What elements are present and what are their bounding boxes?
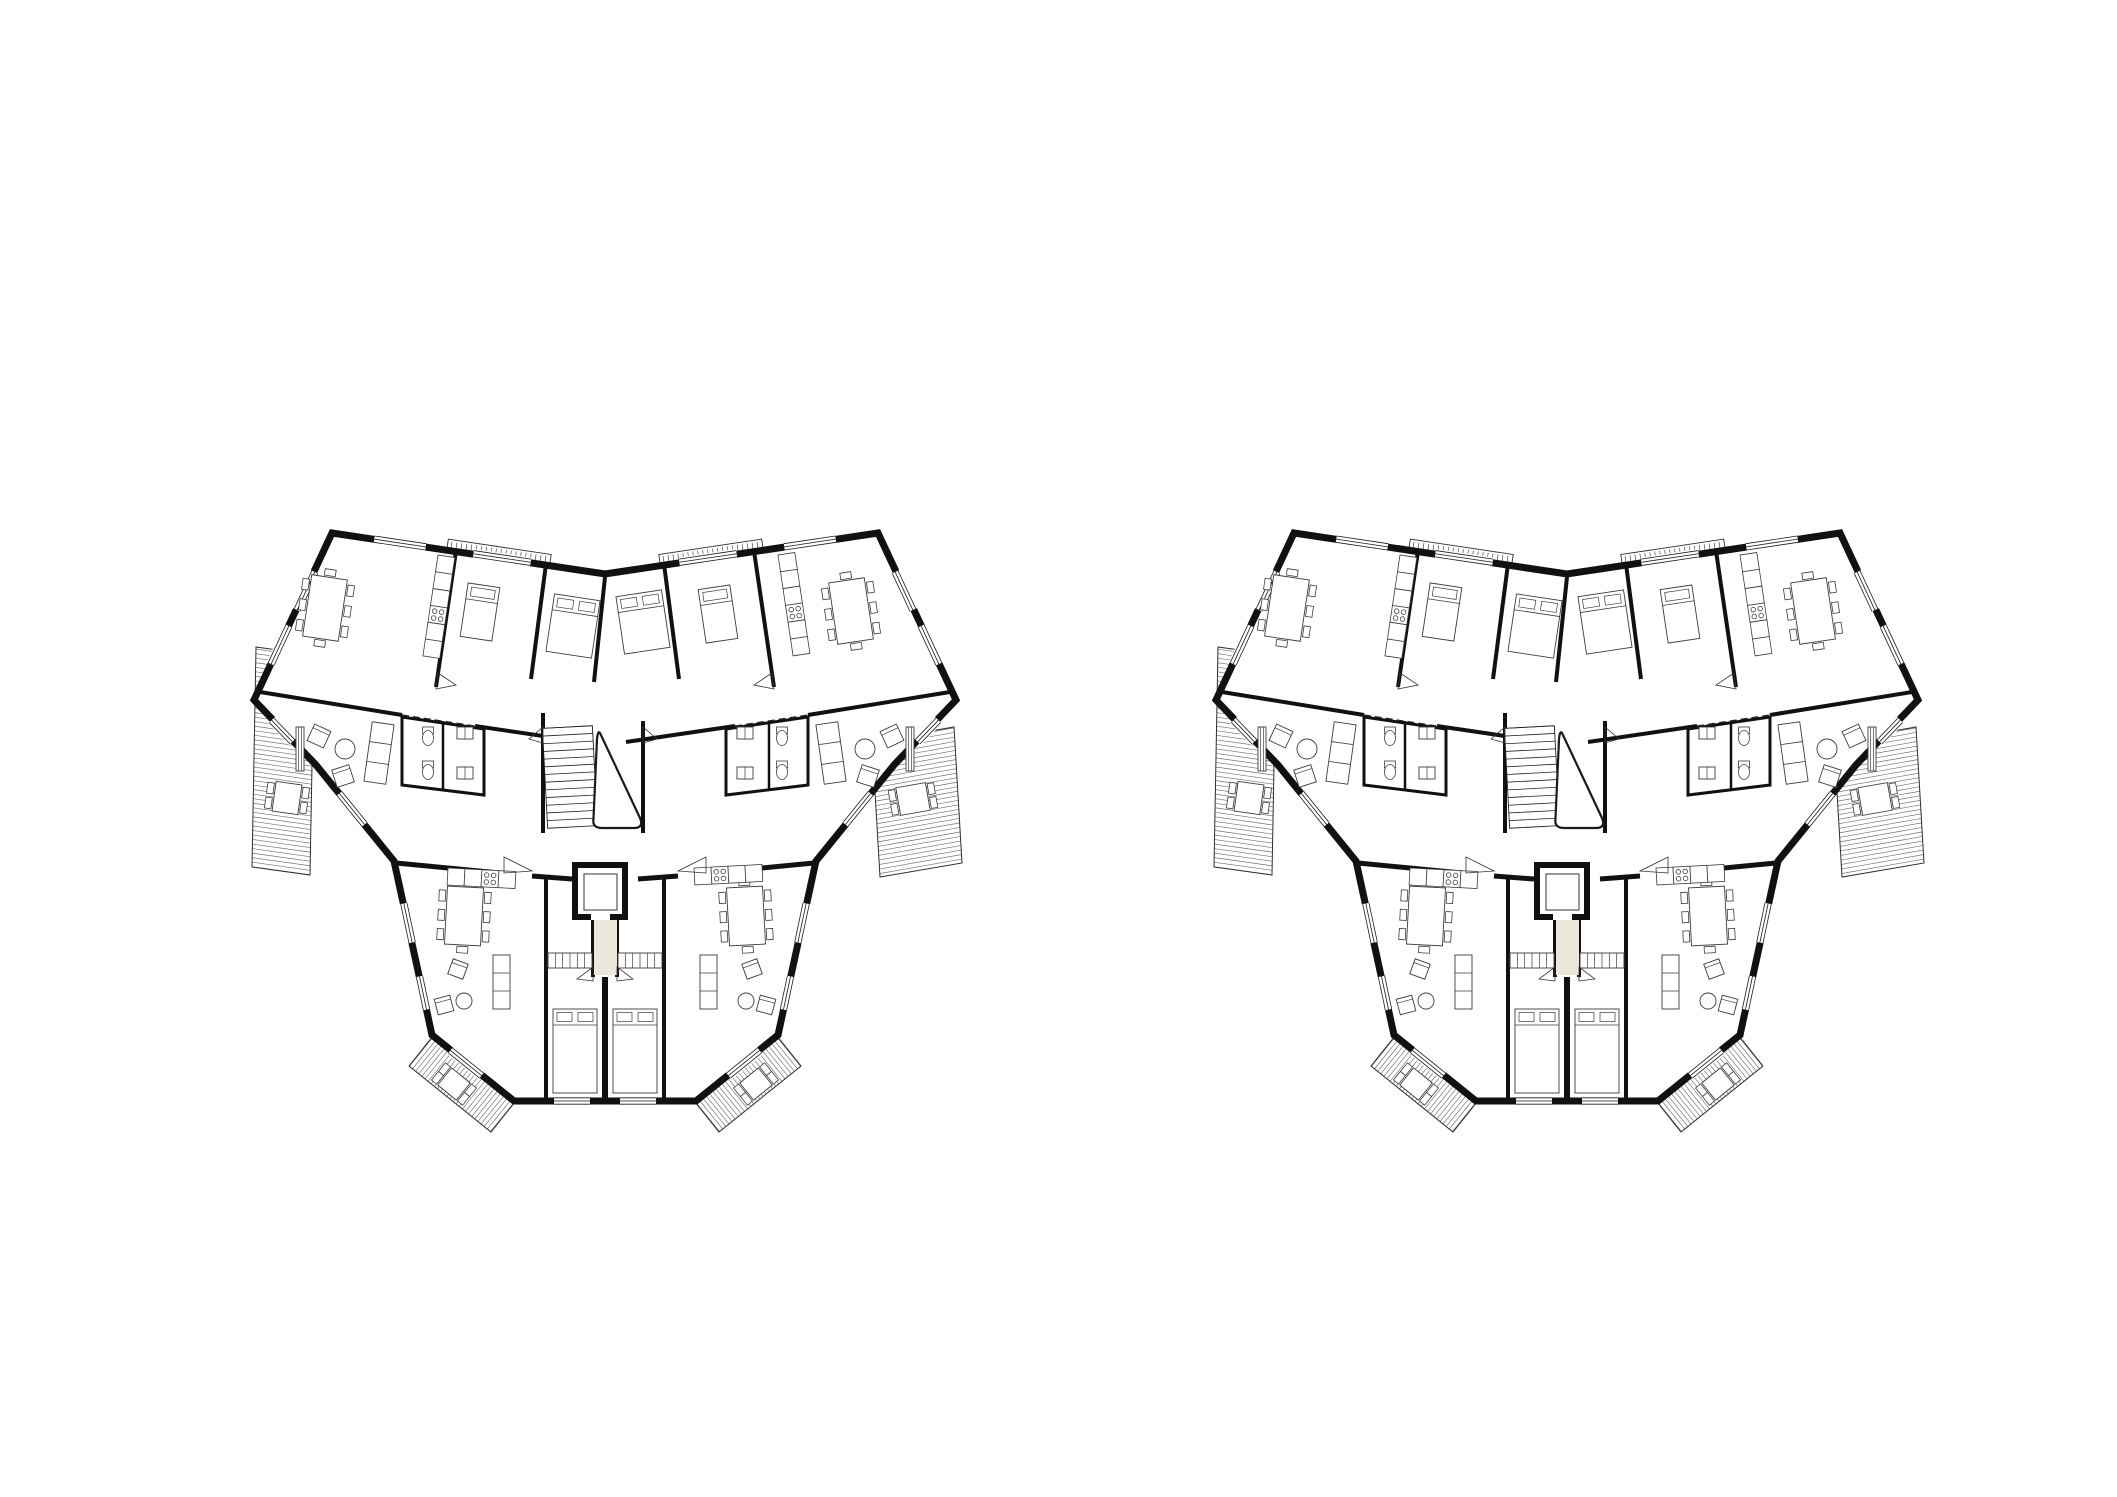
- chair: [300, 802, 308, 814]
- kitchen-cell: [788, 620, 807, 639]
- chair: [888, 790, 896, 802]
- pillow: [1579, 1013, 1594, 1022]
- pillow: [638, 1013, 653, 1022]
- pillow: [578, 1013, 593, 1022]
- kitchen-cell: [1426, 869, 1444, 887]
- chair: [869, 602, 877, 614]
- wardrobe: [296, 727, 304, 771]
- toilet-bowl: [777, 765, 788, 780]
- chair: [484, 892, 491, 903]
- bed: [616, 590, 670, 654]
- deck-board-line: [1344, 1046, 1671, 1450]
- chair: [1262, 802, 1270, 814]
- chair: [828, 629, 836, 641]
- toilet: [1385, 727, 1396, 746]
- chair: [266, 782, 274, 794]
- table-top: [896, 783, 930, 816]
- pillow: [557, 598, 574, 609]
- chair: [1309, 585, 1317, 597]
- kitchen-cell: [447, 868, 465, 886]
- pillow: [578, 601, 595, 612]
- bed: [1515, 1009, 1559, 1093]
- chair: [264, 797, 272, 809]
- chair: [1727, 909, 1734, 920]
- corridor-floor: [1556, 920, 1579, 975]
- interior-wall: [1494, 876, 1534, 879]
- chair: [765, 909, 772, 920]
- kitchen-cell: [1397, 555, 1416, 574]
- chair: [1853, 803, 1861, 815]
- floor-plans-svg: [0, 0, 2117, 1497]
- toilet-bowl: [423, 731, 434, 746]
- table-top: [1689, 886, 1728, 946]
- floor-plan-right: [952, 467, 2117, 1449]
- wardrobe-body: [906, 727, 914, 771]
- pillow: [557, 1013, 572, 1022]
- wardrobe: [1419, 727, 1435, 739]
- wardrobe: [1868, 727, 1876, 771]
- chair: [866, 581, 874, 593]
- chair: [850, 642, 862, 650]
- chair: [721, 931, 728, 942]
- chair: [1802, 572, 1814, 580]
- armchair-seat: [434, 995, 454, 1015]
- chair: [891, 803, 899, 815]
- wardrobe: [1699, 767, 1715, 779]
- chair: [840, 572, 852, 580]
- wardrobe: [1419, 767, 1435, 779]
- chair: [1446, 892, 1453, 903]
- chair: [927, 783, 935, 795]
- chair: [1401, 890, 1408, 901]
- toilet: [1385, 761, 1396, 780]
- chair: [1892, 796, 1900, 808]
- chair: [1683, 931, 1690, 942]
- coffee-table: [335, 739, 355, 759]
- chair: [764, 890, 771, 901]
- kitchen-cell: [423, 639, 442, 658]
- stair-flight: [542, 726, 597, 828]
- kitchen-cell: [498, 871, 516, 889]
- table-top: [1858, 783, 1892, 816]
- pillow: [1519, 1013, 1534, 1022]
- window-band: [1582, 1096, 1618, 1106]
- toilet-bowl: [1385, 731, 1396, 746]
- elevator-door: [591, 913, 610, 920]
- wardrobe: [457, 727, 473, 739]
- kitchen-cell: [1387, 622, 1406, 641]
- chair: [1704, 946, 1715, 953]
- wardrobe-body: [1258, 727, 1266, 771]
- sofa: [1662, 955, 1679, 1009]
- kitchen-counter: [1656, 864, 1725, 885]
- terrace-table: [888, 781, 938, 817]
- chair: [347, 585, 355, 597]
- coffee-table: [738, 993, 754, 1009]
- sofa-body: [1455, 955, 1472, 1009]
- chair: [1445, 912, 1452, 923]
- coffee-table: [855, 739, 875, 759]
- chair: [720, 912, 727, 923]
- toilet: [777, 727, 788, 746]
- kitchen-cell: [1753, 637, 1772, 656]
- pillow: [1540, 601, 1557, 612]
- page-background: [0, 0, 2117, 1497]
- chair: [439, 890, 446, 901]
- chair: [1305, 605, 1313, 617]
- wardrobe: [548, 953, 592, 968]
- chair: [1257, 619, 1265, 631]
- kitchen-cell: [728, 865, 746, 883]
- kitchen-cell: [430, 589, 449, 608]
- deck-board-line: [1462, 1046, 1789, 1450]
- deck-board-line: [60, 476, 575, 548]
- chair: [1264, 787, 1272, 799]
- bed: [1575, 1009, 1619, 1093]
- pillow: [1540, 1013, 1555, 1022]
- sofa: [700, 955, 717, 1009]
- chair: [302, 787, 310, 799]
- sofa-body: [493, 955, 510, 1009]
- window-band: [1516, 1096, 1552, 1106]
- kitchen-cell: [435, 555, 454, 574]
- wardrobe: [1510, 953, 1554, 968]
- wardrobe: [1258, 727, 1266, 771]
- kitchen-cell: [783, 586, 802, 605]
- pillow: [1604, 594, 1621, 605]
- deck-board-line: [500, 1046, 827, 1450]
- kitchen-cell: [745, 864, 763, 882]
- chair: [873, 622, 881, 634]
- coffee-table: [1817, 739, 1837, 759]
- table-top: [445, 886, 484, 946]
- kitchen-cell: [778, 552, 797, 571]
- chair: [1276, 639, 1288, 647]
- chair: [719, 892, 726, 903]
- chair: [1264, 578, 1272, 590]
- chair: [340, 626, 348, 638]
- kitchen-cell: [791, 637, 810, 656]
- wardrobe: [1580, 953, 1624, 968]
- toilet-bowl: [777, 731, 788, 746]
- bed: [613, 1009, 657, 1093]
- toilet: [777, 761, 788, 780]
- toilet: [423, 727, 434, 746]
- chair: [1400, 909, 1407, 920]
- chair: [483, 912, 490, 923]
- chair: [1835, 622, 1843, 634]
- chair: [314, 639, 326, 647]
- toilet: [423, 761, 434, 780]
- kitchen-cell: [1740, 552, 1759, 571]
- toilet: [1739, 761, 1750, 780]
- wardrobe: [1699, 727, 1715, 739]
- chair: [298, 599, 306, 611]
- wardrobe: [618, 953, 662, 968]
- chair: [343, 605, 351, 617]
- chair: [766, 928, 773, 939]
- wardrobe: [737, 767, 753, 779]
- chair: [824, 608, 832, 620]
- chair: [1681, 892, 1688, 903]
- kitchen-cell: [1395, 572, 1414, 591]
- chair: [1228, 782, 1236, 794]
- chair: [482, 931, 489, 942]
- bed: [1578, 590, 1632, 654]
- wardrobe-body: [1868, 727, 1876, 771]
- pillow: [617, 1013, 632, 1022]
- pillow: [1519, 598, 1536, 609]
- kitchen-cell: [1745, 586, 1764, 605]
- window-band: [554, 1096, 590, 1106]
- kitchen-cell: [786, 603, 805, 622]
- bed: [553, 1009, 597, 1093]
- interior-wall: [1600, 876, 1640, 879]
- wardrobe: [737, 727, 753, 739]
- kitchen-cell: [1390, 605, 1409, 624]
- kitchen-cell: [781, 569, 800, 588]
- kitchen-cell: [425, 622, 444, 641]
- kitchen-cell: [464, 869, 482, 887]
- kitchen-cell: [428, 605, 447, 624]
- chair: [1682, 912, 1689, 923]
- deck-board-line: [62, 467, 577, 539]
- armchair: [756, 995, 776, 1015]
- table-top: [1234, 781, 1264, 814]
- chair: [1812, 642, 1824, 650]
- coffee-table: [1418, 993, 1434, 1009]
- coffee-table: [1297, 739, 1317, 759]
- chair: [457, 946, 468, 953]
- deck-board-line: [1024, 467, 1539, 539]
- kitchen-cell: [1743, 569, 1762, 588]
- coffee-table: [1700, 993, 1716, 1009]
- bed: [1508, 594, 1562, 658]
- chair: [1419, 946, 1430, 953]
- sofa: [493, 955, 510, 1009]
- elevator-door: [1553, 913, 1572, 920]
- chair: [930, 796, 938, 808]
- toilet-bowl: [1739, 731, 1750, 746]
- kitchen-cell: [1656, 867, 1674, 885]
- armchair-seat: [1396, 995, 1416, 1015]
- pillow: [1600, 1013, 1615, 1022]
- armchair-seat: [756, 995, 776, 1015]
- pillow: [620, 597, 637, 608]
- floor-plan-left: [0, 467, 1218, 1449]
- chair: [324, 569, 336, 577]
- kitchen-cell: [1460, 871, 1478, 889]
- wardrobe-body: [296, 727, 304, 771]
- table-top: [272, 781, 302, 814]
- kitchen-counter: [447, 868, 516, 889]
- chair: [1399, 928, 1406, 939]
- armchair: [1396, 995, 1416, 1015]
- kitchen-cell: [711, 866, 729, 884]
- coffee-table: [456, 993, 472, 1009]
- deck-board-line: [1023, 472, 1538, 544]
- stair-flight: [1504, 726, 1559, 828]
- table-top: [1407, 886, 1446, 946]
- window-band: [620, 1096, 656, 1106]
- kitchen-counter: [694, 864, 763, 885]
- chair: [1786, 608, 1794, 620]
- kitchen-cell: [1443, 870, 1461, 888]
- chair: [438, 909, 445, 920]
- wardrobe: [906, 727, 914, 771]
- toilet-bowl: [423, 765, 434, 780]
- toilet-bowl: [1385, 765, 1396, 780]
- chair: [437, 928, 444, 939]
- bed: [546, 594, 600, 658]
- armchair: [434, 995, 454, 1015]
- interior-wall: [638, 876, 678, 879]
- pillow: [1582, 597, 1599, 608]
- kitchen-cell: [433, 572, 452, 591]
- kitchen-cell: [481, 870, 499, 888]
- kitchen-cell: [1673, 866, 1691, 884]
- kitchen-counter: [1409, 868, 1478, 889]
- kitchen-cell: [1385, 639, 1404, 658]
- sofa: [1455, 955, 1472, 1009]
- kitchen-cell: [1748, 603, 1767, 622]
- chair: [1226, 797, 1234, 809]
- kitchen-cell: [1750, 620, 1769, 639]
- armchair-seat: [1718, 995, 1738, 1015]
- kitchen-cell: [694, 867, 712, 885]
- chair: [1260, 599, 1268, 611]
- chair: [1828, 581, 1836, 593]
- chair: [1831, 602, 1839, 614]
- toilet-bowl: [1739, 765, 1750, 780]
- kitchen-cell: [1707, 864, 1725, 882]
- kitchen-cell: [1392, 589, 1411, 608]
- table-top: [727, 886, 766, 946]
- deck-board-line: [382, 1046, 709, 1450]
- chair: [1286, 569, 1298, 577]
- corridor-floor: [594, 920, 617, 975]
- deck-board-line: [1022, 476, 1537, 548]
- chair: [1302, 626, 1310, 638]
- chair: [1726, 890, 1733, 901]
- chair: [1783, 588, 1791, 600]
- deck-board-line: [60, 481, 575, 553]
- chair: [1850, 790, 1858, 802]
- chair: [1790, 629, 1798, 641]
- toilet: [1739, 727, 1750, 746]
- kitchen-cell: [1409, 868, 1427, 886]
- sofa-body: [700, 955, 717, 1009]
- kitchen-cell: [1690, 865, 1708, 883]
- armchair: [1718, 995, 1738, 1015]
- deck-board-line: [61, 472, 576, 544]
- chair: [302, 578, 310, 590]
- chair: [1889, 783, 1897, 795]
- wardrobe: [457, 767, 473, 779]
- chair: [742, 946, 753, 953]
- chair: [821, 588, 829, 600]
- deck-board-line: [1022, 481, 1537, 553]
- interior-wall: [532, 876, 572, 879]
- chair: [1728, 928, 1735, 939]
- sofa-body: [1662, 955, 1679, 1009]
- chair: [295, 619, 303, 631]
- chair: [1444, 931, 1451, 942]
- terrace-table: [1850, 781, 1900, 817]
- pillow: [642, 594, 659, 605]
